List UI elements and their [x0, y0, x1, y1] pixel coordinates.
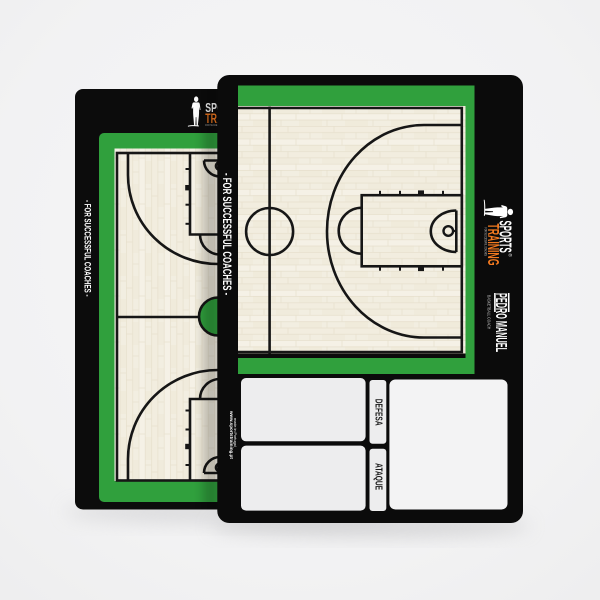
svg-text:FOR SUCCESSFUL COACHES: FOR SUCCESSFUL COACHES	[483, 228, 488, 256]
svg-text:made in Portugal: made in Portugal	[233, 418, 238, 447]
svg-text:- FOR SUCCESSFUL COACHES -: - FOR SUCCESSFUL COACHES -	[82, 200, 93, 297]
svg-text:www.sportstraining.pt: www.sportstraining.pt	[229, 410, 234, 459]
svg-text:PEDRO MANUEL: PEDRO MANUEL	[492, 293, 510, 352]
svg-text:- FOR SUCCESSFUL COACHES -: - FOR SUCCESSFUL COACHES -	[219, 173, 232, 296]
svg-text:BASKETBALL COACH: BASKETBALL COACH	[486, 295, 492, 329]
svg-text:ATAQUE: ATAQUE	[373, 463, 385, 490]
svg-text:DEFESA: DEFESA	[373, 399, 385, 426]
